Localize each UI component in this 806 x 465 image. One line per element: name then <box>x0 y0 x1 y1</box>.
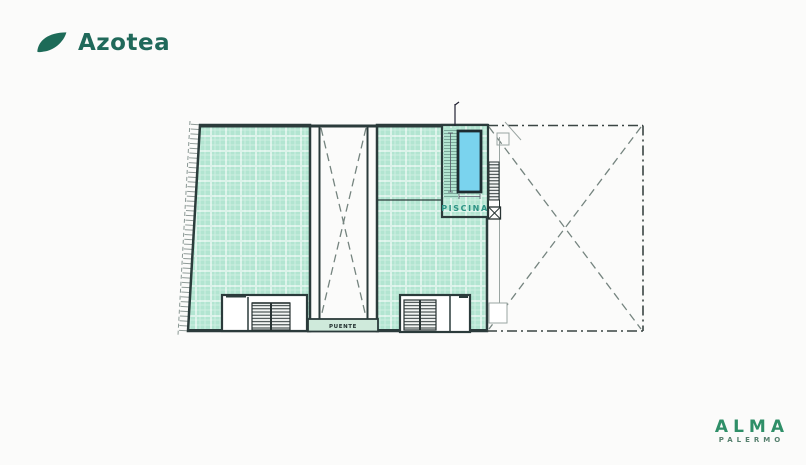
property-line-dashed <box>178 121 190 335</box>
bridge: PUENTE <box>308 319 378 332</box>
pool-deck: PISCINA <box>441 125 489 217</box>
piscina-label: PISCINA <box>441 204 489 213</box>
open-void-area <box>487 122 643 331</box>
pool <box>458 131 481 192</box>
brand-footer: ALMA PALERMO <box>715 418 784 445</box>
floor-plan-container: PISCINA PUENTE <box>0 0 806 461</box>
stair-core-right <box>400 294 470 332</box>
floor-plan: PISCINA PUENTE <box>0 0 806 461</box>
section-marker <box>455 102 459 126</box>
stair-core-left <box>222 294 307 331</box>
pool-deck-hatch <box>444 128 458 198</box>
footer-sub-brand: PALERMO <box>715 437 788 445</box>
puente-label: PUENTE <box>329 324 357 330</box>
pool-access-stair <box>489 162 501 219</box>
footer-brand-name: ALMA <box>715 418 789 437</box>
